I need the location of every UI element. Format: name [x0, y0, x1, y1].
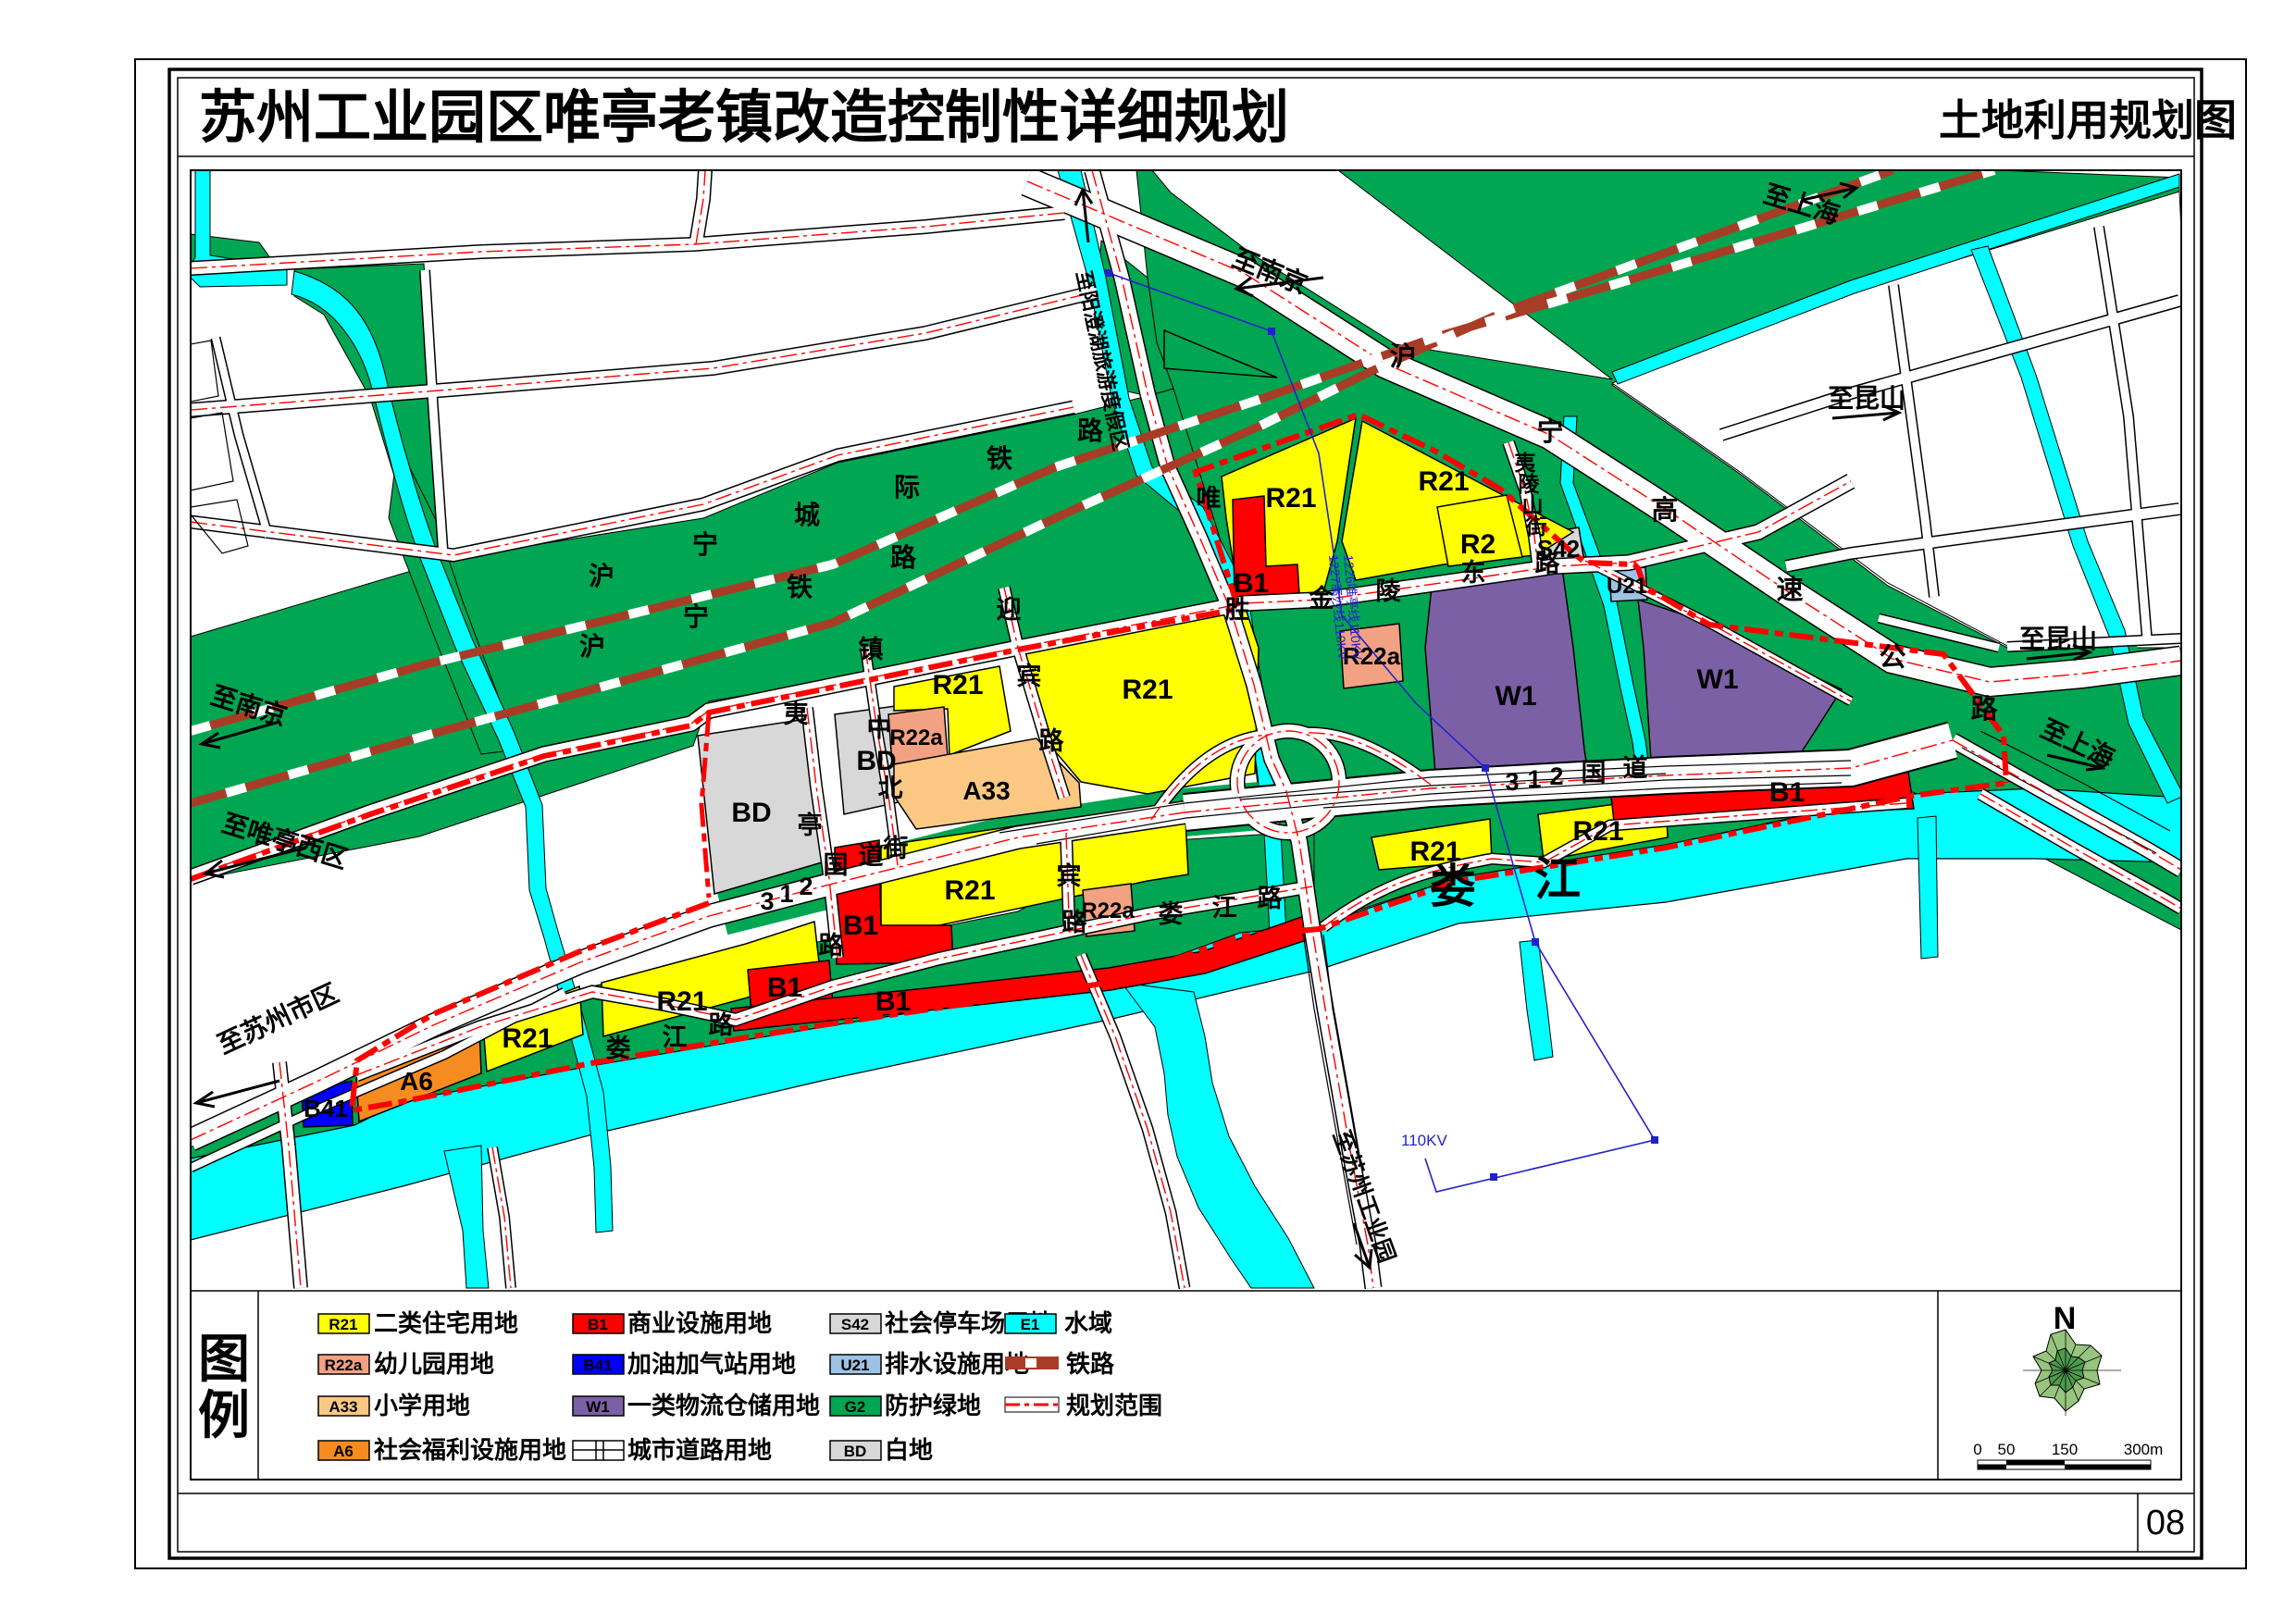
- svg-text:社会福利设施用地: 社会福利设施用地: [374, 1436, 566, 1464]
- svg-text:宁: 宁: [1536, 415, 1563, 447]
- svg-text:际: 际: [894, 473, 920, 502]
- svg-text:50: 50: [1998, 1441, 2016, 1458]
- svg-text:国: 国: [824, 851, 849, 879]
- svg-text:至昆山: 至昆山: [1828, 384, 1905, 413]
- svg-text:R21: R21: [944, 875, 995, 906]
- svg-text:迎: 迎: [997, 596, 1022, 624]
- svg-text:R21: R21: [1265, 483, 1316, 514]
- svg-text:B1: B1: [843, 911, 878, 941]
- svg-text:150: 150: [2052, 1441, 2078, 1458]
- svg-text:娄: 娄: [1430, 861, 1476, 912]
- svg-text:例: 例: [198, 1386, 250, 1444]
- svg-text:速: 速: [1776, 575, 1803, 605]
- svg-text:规划范围: 规划范围: [1066, 1392, 1162, 1419]
- svg-text:二类住宅用地: 二类住宅用地: [374, 1309, 518, 1337]
- svg-text:S42: S42: [841, 1316, 869, 1333]
- svg-text:1: 1: [779, 880, 793, 908]
- svg-text:A33: A33: [329, 1398, 357, 1416]
- svg-text:R21: R21: [1122, 675, 1173, 705]
- svg-text:110KV: 110KV: [1401, 1132, 1447, 1149]
- svg-text:沪: 沪: [1389, 341, 1416, 372]
- svg-text:国: 国: [1582, 759, 1607, 787]
- svg-text:商业设施用地: 商业设施用地: [627, 1309, 772, 1337]
- svg-text:R21: R21: [1572, 816, 1623, 847]
- svg-text:胜: 胜: [1225, 596, 1250, 624]
- svg-text:加油加气站用地: 加油加气站用地: [627, 1350, 796, 1378]
- svg-text:路: 路: [1039, 726, 1065, 755]
- svg-text:U21: U21: [1607, 574, 1647, 599]
- svg-text:娄: 娄: [1159, 900, 1184, 928]
- svg-text:B1: B1: [1769, 777, 1805, 808]
- svg-text:公: 公: [1879, 643, 1905, 673]
- svg-text:路: 路: [1535, 549, 1561, 577]
- svg-text:A6: A6: [400, 1067, 433, 1096]
- svg-text:道: 道: [1623, 753, 1648, 782]
- svg-text:城: 城: [794, 501, 820, 529]
- svg-text:宾: 宾: [1017, 662, 1042, 690]
- svg-text:3: 3: [1505, 768, 1519, 796]
- svg-text:镇: 镇: [859, 636, 884, 663]
- svg-text:北: 北: [878, 774, 903, 802]
- svg-text:街: 街: [1525, 514, 1547, 539]
- svg-text:小学用地: 小学用地: [374, 1392, 470, 1419]
- svg-text:U21: U21: [840, 1357, 869, 1374]
- svg-text:陵: 陵: [1376, 577, 1402, 605]
- svg-text:W1: W1: [1496, 681, 1537, 712]
- svg-text:BD: BD: [844, 1443, 867, 1460]
- svg-text:一类物流仓储用地: 一类物流仓储用地: [627, 1392, 820, 1419]
- svg-text:G2: G2: [845, 1398, 866, 1416]
- svg-text:娄: 娄: [606, 1035, 631, 1062]
- svg-text:图: 图: [198, 1330, 250, 1388]
- svg-text:B1: B1: [875, 986, 911, 1017]
- svg-text:B1: B1: [1234, 568, 1269, 599]
- svg-text:1: 1: [1527, 765, 1541, 793]
- svg-text:江: 江: [1212, 894, 1237, 922]
- svg-text:路: 路: [709, 1010, 735, 1039]
- svg-text:路: 路: [1970, 694, 1998, 725]
- svg-text:R21: R21: [1418, 466, 1469, 497]
- svg-text:土地利用规划图: 土地利用规划图: [1939, 96, 2237, 144]
- svg-text:R21: R21: [932, 670, 983, 700]
- svg-text:路: 路: [1077, 416, 1104, 445]
- svg-text:300m: 300m: [2124, 1441, 2164, 1458]
- svg-text:R21: R21: [656, 986, 707, 1017]
- svg-text:街: 街: [883, 835, 909, 862]
- svg-text:W1: W1: [1697, 664, 1739, 695]
- svg-text:2: 2: [1549, 762, 1563, 790]
- svg-text:路: 路: [819, 931, 845, 960]
- svg-text:0: 0: [1973, 1441, 1981, 1458]
- svg-text:R2: R2: [1460, 529, 1496, 560]
- svg-text:E1: E1: [1021, 1316, 1040, 1333]
- svg-text:BD: BD: [731, 798, 771, 828]
- svg-text:沪: 沪: [589, 562, 614, 590]
- svg-text:B41: B41: [583, 1357, 612, 1374]
- svg-text:夷: 夷: [784, 700, 810, 728]
- svg-text:08: 08: [2146, 1504, 2185, 1542]
- svg-text:铁: 铁: [987, 444, 1012, 473]
- svg-text:B41: B41: [304, 1095, 348, 1122]
- svg-text:W1: W1: [586, 1398, 610, 1416]
- svg-text:水域: 水域: [1064, 1309, 1112, 1337]
- svg-text:R22a: R22a: [889, 725, 943, 750]
- svg-text:苏州工业园区唯亭老镇改造控制性详细规划: 苏州工业园区唯亭老镇改造控制性详细规划: [199, 86, 1289, 150]
- svg-text:B1: B1: [767, 973, 802, 1003]
- svg-text:3: 3: [760, 887, 774, 915]
- svg-text:R22a: R22a: [325, 1357, 363, 1374]
- svg-text:高: 高: [1651, 495, 1678, 526]
- svg-text:路: 路: [1258, 884, 1284, 912]
- svg-text:唯: 唯: [1197, 485, 1222, 513]
- svg-text:城市道路用地: 城市道路用地: [627, 1436, 772, 1464]
- svg-text:R22a: R22a: [1081, 898, 1135, 923]
- svg-text:R21: R21: [502, 1023, 552, 1054]
- svg-text:幼儿园用地: 幼儿园用地: [374, 1350, 494, 1378]
- svg-text:道: 道: [859, 841, 884, 870]
- svg-text:中: 中: [867, 714, 892, 742]
- svg-text:防护绿地: 防护绿地: [885, 1392, 981, 1419]
- svg-text:A6: A6: [333, 1443, 354, 1460]
- svg-text:东: 东: [1461, 558, 1486, 587]
- svg-text:宁: 宁: [692, 529, 718, 559]
- svg-text:路: 路: [890, 543, 917, 572]
- svg-text:白地: 白地: [885, 1436, 933, 1464]
- svg-text:2: 2: [799, 873, 813, 900]
- svg-text:沪: 沪: [579, 632, 605, 661]
- svg-text:A33: A33: [962, 776, 1010, 805]
- svg-text:铁: 铁: [787, 573, 813, 601]
- svg-text:江: 江: [663, 1023, 688, 1051]
- svg-text:宾: 宾: [1057, 861, 1082, 890]
- svg-text:江: 江: [1534, 853, 1581, 905]
- svg-text:铁路: 铁路: [1066, 1350, 1115, 1378]
- svg-text:R21: R21: [329, 1316, 357, 1333]
- svg-text:B1: B1: [588, 1316, 608, 1333]
- svg-text:亭: 亭: [798, 811, 823, 839]
- svg-text:宁: 宁: [683, 601, 709, 631]
- svg-text:路: 路: [1062, 908, 1088, 936]
